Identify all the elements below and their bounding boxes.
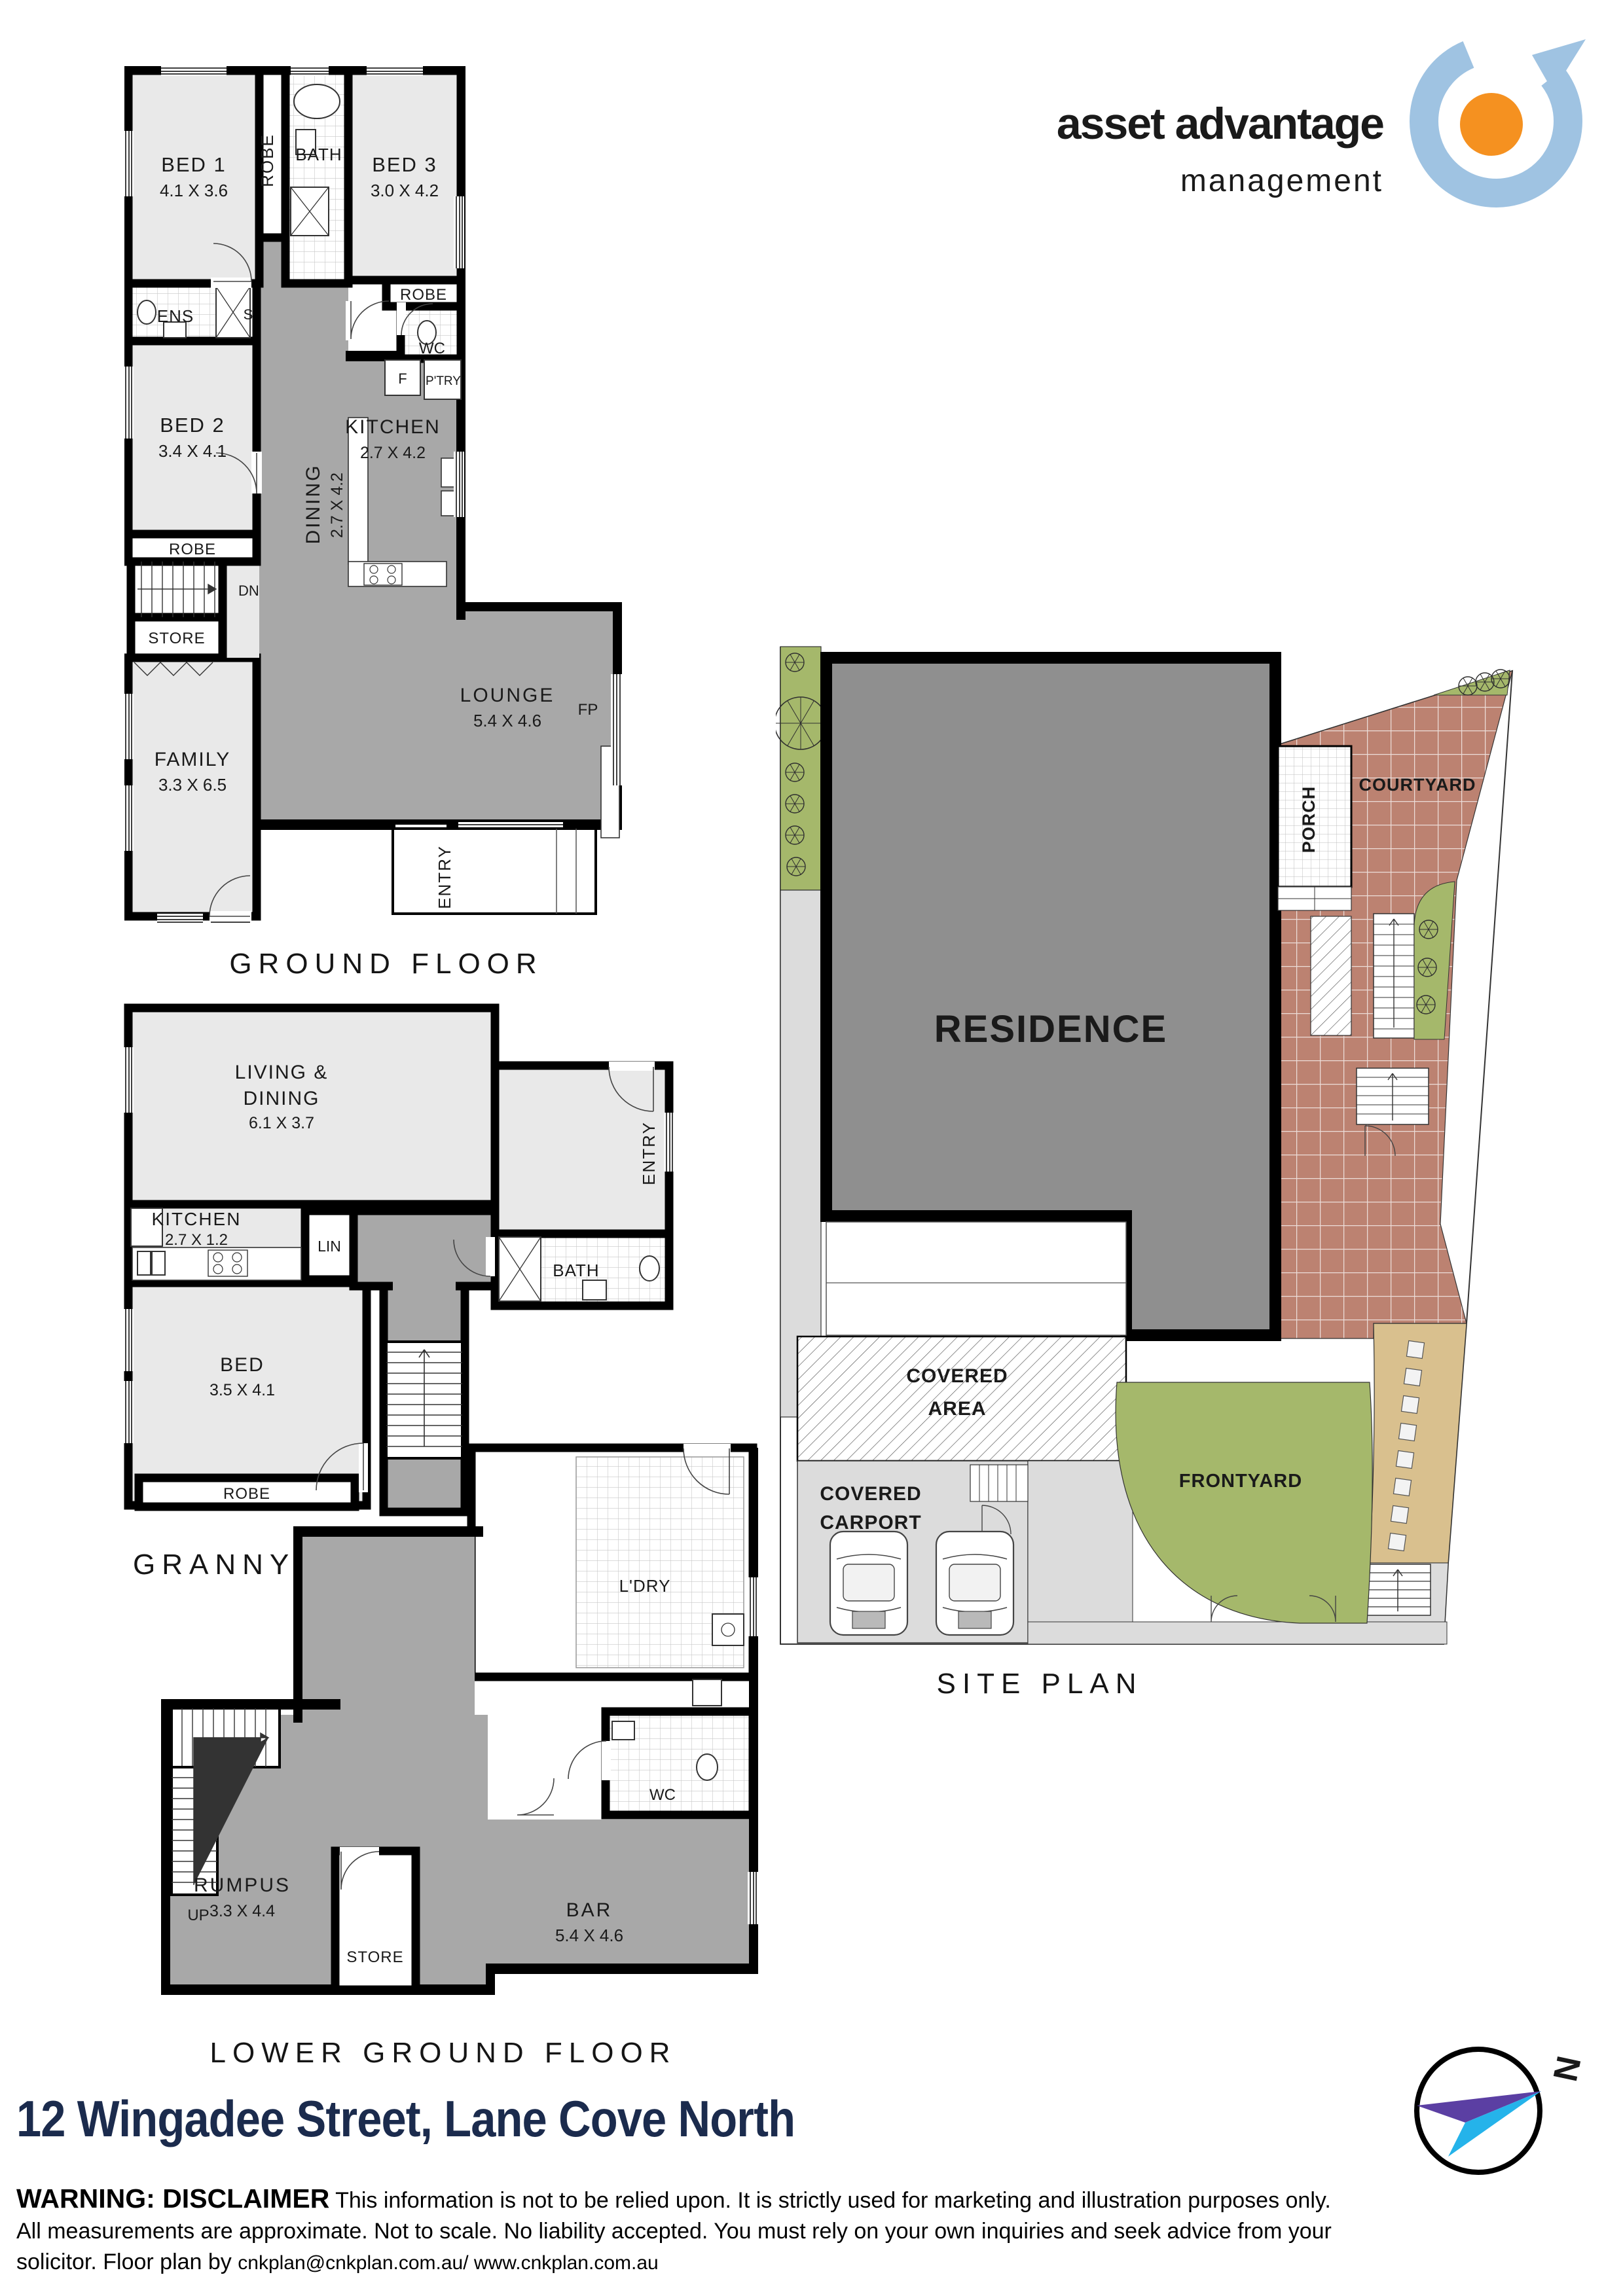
label-courtyard: COURTYARD xyxy=(1359,775,1476,795)
kitchen-island xyxy=(348,418,368,564)
front-path xyxy=(1028,1622,1447,1644)
label-living2: DINING xyxy=(244,1088,320,1109)
label-ens: ENS xyxy=(157,306,194,326)
room-store-lower xyxy=(335,1851,416,1990)
label-wc: WC xyxy=(419,340,445,357)
label-family-dim: 3.3 X 6.5 xyxy=(158,775,227,795)
disclaimer-line2: All measurements are approximate. Not to… xyxy=(16,2216,1601,2247)
label-covered2: AREA xyxy=(928,1398,986,1420)
label-family: FAMILY xyxy=(155,749,230,770)
label-bed3-dim: 3.0 X 4.2 xyxy=(371,181,439,200)
toilet-icon xyxy=(640,1256,659,1281)
label-robe3: ROBE xyxy=(400,286,447,304)
label-store-lower: STORE xyxy=(346,1948,403,1966)
label-bed2: BED 2 xyxy=(160,414,225,437)
label-covered1: COVERED xyxy=(906,1365,1008,1387)
label-wc-lower: WC xyxy=(649,1786,676,1804)
stove-icon xyxy=(208,1250,247,1276)
label-bed1: BED 1 xyxy=(161,153,227,176)
label-bar-dim: 5.4 X 4.6 xyxy=(555,1926,623,1945)
logo-mark-icon xyxy=(1395,26,1597,222)
lower-ground-title: LOWER GROUND FLOOR xyxy=(210,2037,677,2070)
sink-icon xyxy=(693,1679,721,1706)
label-kitchen-granny-dim: 2.7 X 1.2 xyxy=(165,1231,228,1249)
label-lounge: LOUNGE xyxy=(460,685,555,706)
disclaimer-credit: cnkplan@cnkplan.com.au/ www.cnkplan.com.… xyxy=(238,2252,658,2274)
granny-hall-join xyxy=(393,1276,456,1295)
compass-north-label: N xyxy=(1545,2053,1584,2085)
ground-floor-plan: BED 1 4.1 X 3.6 ROBE BATH BED 3 3.0 X 4.… xyxy=(124,62,642,926)
label-ldry: L'DRY xyxy=(619,1576,671,1596)
label-porch: PORCH xyxy=(1299,786,1319,853)
planter xyxy=(1311,916,1351,1035)
ground-landing xyxy=(225,563,259,658)
ens-toilet-icon xyxy=(137,300,156,324)
room-bed1 xyxy=(128,71,259,283)
disclaimer-text1: This information is not to be relied upo… xyxy=(335,2188,1331,2213)
label-rumpus-dim: 3.3 X 4.4 xyxy=(210,1902,275,1920)
label-living1: LIVING & xyxy=(235,1062,329,1083)
label-robe2: ROBE xyxy=(169,541,216,558)
label-bed3: BED 3 xyxy=(372,153,437,176)
disclaimer-text3: solicitor. Floor plan by xyxy=(16,2250,232,2274)
label-up: UP xyxy=(187,1907,209,1924)
label-bath-granny: BATH xyxy=(553,1261,599,1280)
toilet-icon xyxy=(697,1754,718,1780)
wc-sink-icon xyxy=(612,1721,634,1740)
label-kitchen-dim: 2.7 X 4.2 xyxy=(360,444,426,462)
label-robe1: ROBE xyxy=(257,134,277,187)
label-bed-granny-dim: 3.5 X 4.1 xyxy=(210,1381,275,1399)
rear-terrace xyxy=(826,1222,1126,1335)
label-frontyard: FRONTYARD xyxy=(1179,1471,1302,1492)
label-bath: BATH xyxy=(295,145,342,164)
bathtub-icon xyxy=(294,84,340,118)
label-bar: BAR xyxy=(566,1899,613,1921)
stove-icon xyxy=(364,564,402,585)
label-ptry: P'TRY xyxy=(426,374,461,388)
lower-ground-plan: L'DRY WC BAR 5.4 X 4.6 UP RUMPUS 3.3 X 4… xyxy=(160,1440,766,2022)
compass-icon: N xyxy=(1401,2026,1584,2189)
site-plan: RESIDENCE PORCH COURTYARD COVERED AREA C… xyxy=(776,641,1529,1653)
label-rumpus: RUMPUS xyxy=(194,1874,291,1896)
vanity-icon xyxy=(583,1280,606,1300)
floorplan-page: asset advantage management xyxy=(0,0,1623,2296)
label-residence: RESIDENCE xyxy=(934,1008,1167,1050)
label-lin: LIN xyxy=(318,1238,341,1255)
label-lounge-dim: 5.4 X 4.6 xyxy=(473,711,541,730)
label-living-dim: 6.1 X 3.7 xyxy=(249,1114,314,1132)
disclaimer-line1: WARNING: DISCLAIMER This information is … xyxy=(16,2183,1601,2216)
label-kitchen: KITCHEN xyxy=(345,416,441,438)
label-store: STORE xyxy=(148,630,205,647)
granny-hall xyxy=(354,1211,495,1286)
sink-icon xyxy=(137,1251,151,1275)
disclaimer-lead: WARNING: DISCLAIMER xyxy=(16,2183,329,2214)
logo-subtitle: management xyxy=(1180,164,1383,198)
room-bed2 xyxy=(128,341,257,534)
label-bed-granny: BED xyxy=(220,1354,264,1376)
ground-entry-porch xyxy=(393,829,596,914)
logo: asset advantage management xyxy=(982,26,1597,223)
disclaimer-line3: solicitor. Floor plan by cnkplan@cnkplan… xyxy=(16,2247,1601,2278)
label-dining: DINING xyxy=(302,464,324,545)
site-stairs-c xyxy=(1365,1564,1431,1615)
label-dining-dim: 2.7 X 4.2 xyxy=(328,473,346,538)
frontyard-area xyxy=(1116,1382,1372,1623)
disclaimer: WARNING: DISCLAIMER This information is … xyxy=(16,2183,1601,2278)
label-dn: DN xyxy=(238,583,259,599)
property-address: 12 Wingadee Street, Lane Cove North xyxy=(16,2089,795,2149)
label-bed2-dim: 3.4 X 4.1 xyxy=(158,441,227,461)
label-entry-granny: ENTRY xyxy=(639,1121,659,1185)
site-stairs-a xyxy=(1374,914,1414,1038)
driveway-side xyxy=(1028,1461,1133,1643)
label-fp: FP xyxy=(578,701,598,719)
label-entry: ENTRY xyxy=(435,845,454,909)
label-kitchen-granny: KITCHEN xyxy=(152,1209,242,1229)
label-f: F xyxy=(398,370,407,387)
logo-title: asset advantage xyxy=(1057,99,1383,149)
ground-floor-title: GROUND FLOOR xyxy=(229,948,543,980)
site-plan-title: SITE PLAN xyxy=(937,1668,1143,1700)
label-carport2: CARPORT xyxy=(820,1512,921,1534)
sand-path xyxy=(1370,1323,1467,1563)
label-bed1-dim: 4.1 X 3.6 xyxy=(160,181,228,200)
label-carport1: COVERED xyxy=(820,1483,921,1505)
label-s: S xyxy=(244,306,253,323)
